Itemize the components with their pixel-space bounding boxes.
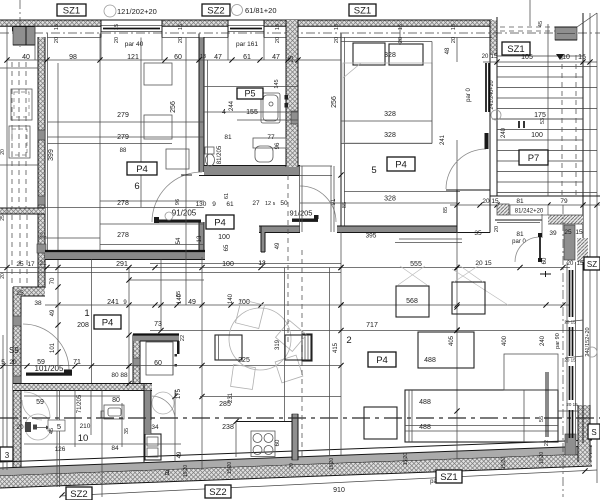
svg-text:279: 279 [117,134,129,141]
svg-text:13: 13 [258,260,266,267]
svg-text:130: 130 [196,201,207,208]
svg-text:65: 65 [224,244,230,251]
svg-text:60: 60 [275,439,281,446]
svg-text:20: 20 [334,37,340,43]
svg-text:80: 80 [112,397,120,404]
svg-text:240: 240 [540,335,546,346]
svg-text:S: S [591,428,596,437]
svg-text:71: 71 [73,359,81,366]
svg-text:85: 85 [443,207,449,213]
svg-text:400: 400 [502,335,508,346]
svg-text:256: 256 [331,96,338,108]
svg-text:5: 5 [371,165,376,176]
svg-text:35: 35 [474,230,482,237]
svg-text:21: 21 [39,232,47,239]
svg-text:399: 399 [48,149,55,161]
svg-text:488: 488 [419,424,431,431]
svg-text:45: 45 [49,428,55,434]
svg-text:15|20: 15|20 [183,465,189,478]
svg-text:15: 15 [484,260,492,267]
svg-text:81/205: 81/205 [217,145,223,164]
svg-text:22: 22 [544,440,550,446]
svg-text:2: 2 [346,335,351,346]
svg-text:278: 278 [117,200,129,207]
svg-text:27: 27 [252,200,260,207]
svg-text:910: 910 [333,487,345,494]
svg-text:15: 15 [491,54,498,60]
svg-text:81: 81 [224,134,232,141]
svg-text:a: a [164,467,169,477]
svg-text:15: 15 [178,24,184,30]
svg-text:20: 20 [494,226,500,232]
svg-text:210: 210 [80,423,91,430]
svg-text:15: 15 [577,261,584,267]
svg-text:SZ: SZ [587,260,597,269]
svg-text:10: 10 [562,54,570,61]
svg-text:49: 49 [177,451,183,458]
svg-text:244: 244 [229,100,235,111]
svg-text:SZ2: SZ2 [70,489,87,500]
svg-text:61: 61 [226,201,234,208]
svg-text:3: 3 [5,451,10,460]
svg-text:71/205: 71/205 [77,394,83,413]
svg-text:20: 20 [54,37,60,43]
svg-text:100: 100 [218,234,230,241]
svg-text:238: 238 [222,424,234,431]
svg-text:80: 80 [111,372,119,379]
svg-text:SZ1: SZ1 [354,5,371,16]
svg-text:P4: P4 [214,217,226,228]
svg-text:328: 328 [384,196,396,203]
svg-text:P4: P4 [376,355,388,366]
svg-text:568: 568 [406,298,418,305]
svg-text:P4: P4 [136,164,148,175]
svg-text:47: 47 [214,54,222,61]
svg-text:278: 278 [117,232,129,239]
svg-text:70: 70 [50,277,56,284]
svg-text:53: 53 [540,118,546,124]
svg-text:96: 96 [275,142,281,149]
svg-text:488: 488 [424,357,436,364]
svg-text:73: 73 [154,321,162,328]
svg-text:20 15: 20 15 [564,358,576,363]
svg-text:60: 60 [542,257,548,264]
svg-text:15: 15 [114,24,120,30]
svg-text:15|20: 15|20 [403,453,409,466]
svg-text:60: 60 [154,360,162,367]
svg-text:140: 140 [177,293,183,304]
svg-text:279: 279 [117,112,129,119]
svg-text:91/205: 91/205 [172,209,197,218]
svg-text:555: 555 [410,261,422,268]
svg-text:77: 77 [267,134,275,141]
svg-text:5: 5 [57,422,61,431]
svg-text:717: 717 [366,322,378,329]
svg-text:121/202+20: 121/202+20 [117,7,157,16]
svg-text:79: 79 [560,198,568,205]
svg-text:35: 35 [124,428,130,434]
svg-text:45: 45 [538,21,544,27]
svg-text:12: 12 [265,201,271,207]
svg-text:15|20: 15|20 [227,462,233,475]
svg-text:par 0: par 0 [466,88,472,102]
svg-text:34: 34 [151,424,159,431]
svg-text:96: 96 [175,199,181,205]
svg-text:328: 328 [384,52,396,59]
svg-text:13: 13 [197,235,203,242]
svg-text:20: 20 [0,273,6,279]
svg-text:20 15: 20 15 [566,402,578,407]
svg-text:20: 20 [482,198,490,205]
svg-text:88: 88 [120,372,128,379]
svg-text:59: 59 [36,399,44,406]
svg-text:145: 145 [274,79,280,88]
svg-text:140: 140 [228,293,234,304]
svg-text:P4: P4 [102,317,114,328]
svg-text:20: 20 [482,54,489,60]
svg-text:38: 38 [34,300,42,307]
svg-text:15: 15 [575,229,583,236]
svg-text:59: 59 [37,359,45,366]
svg-text:208: 208 [77,322,89,329]
svg-text:40: 40 [22,54,30,61]
svg-text:SZ1: SZ1 [63,5,80,16]
svg-text:126: 126 [55,446,66,453]
svg-text:84: 84 [111,445,119,452]
svg-text:60: 60 [174,54,182,61]
svg-text:81: 81 [516,231,524,238]
svg-text:240: 240 [501,127,507,138]
svg-text:256: 256 [170,101,177,113]
svg-text:54: 54 [176,237,182,244]
svg-text:100: 100 [222,261,234,268]
svg-text:P7: P7 [528,153,540,164]
svg-text:175: 175 [176,388,182,399]
svg-text:291: 291 [116,261,128,268]
svg-text:328: 328 [384,111,396,118]
svg-text:61/81+20: 61/81+20 [245,6,277,15]
svg-text:20: 20 [178,37,184,43]
svg-text:SZ2: SZ2 [207,5,224,16]
svg-text:49: 49 [275,242,281,249]
svg-text:21: 21 [39,260,47,267]
svg-text:81: 81 [516,198,524,205]
svg-text:17: 17 [27,261,35,268]
svg-text:20: 20 [9,359,17,366]
svg-text:101: 101 [50,342,56,353]
svg-text:SZ2: SZ2 [209,487,226,498]
svg-text:par 90: par 90 [555,333,561,349]
svg-text:par 161: par 161 [236,41,258,48]
svg-text:13: 13 [200,54,206,60]
svg-text:61: 61 [243,54,251,61]
svg-text:395: 395 [366,233,377,240]
svg-text:22: 22 [180,335,186,341]
svg-text:4: 4 [222,109,226,116]
svg-text:100: 100 [531,132,543,139]
svg-text:20: 20 [451,37,457,43]
svg-text:88: 88 [120,148,127,154]
svg-text:85: 85 [342,202,348,208]
svg-text:15: 15 [334,24,340,30]
svg-text:405: 405 [449,335,455,346]
svg-text:15: 15 [451,24,457,30]
svg-text:20: 20 [289,463,295,469]
svg-text:20: 20 [0,149,6,155]
svg-text:81/242+20: 81/242+20 [515,209,544,215]
svg-text:241: 241 [440,134,446,145]
svg-text:10: 10 [78,433,89,444]
svg-text:285: 285 [219,401,231,408]
svg-text:20: 20 [114,37,120,43]
svg-text:S9: S9 [9,346,19,355]
svg-text:SZ1: SZ1 [440,472,457,483]
svg-text:39: 39 [549,230,557,237]
svg-text:25: 25 [564,229,572,236]
svg-text:48: 48 [445,47,451,54]
svg-text:155: 155 [246,109,258,116]
svg-text:225: 225 [238,357,250,364]
svg-text:415: 415 [333,342,339,353]
svg-text:15|20: 15|20 [501,457,507,470]
svg-text:1: 1 [84,308,89,319]
svg-text:61: 61 [224,193,230,199]
svg-text:55: 55 [539,416,545,422]
svg-text:6: 6 [134,181,139,192]
svg-text:15: 15 [275,24,281,30]
svg-text:241/152+20: 241/152+20 [585,327,591,356]
svg-text:15: 15 [398,24,404,30]
svg-text:15: 15 [54,24,60,30]
svg-text:20: 20 [16,424,24,431]
svg-text:328: 328 [384,132,396,139]
svg-text:20 15: 20 15 [564,320,576,325]
svg-text:P4: P4 [395,159,407,170]
svg-text:20: 20 [475,260,483,267]
svg-text:25: 25 [0,215,6,221]
svg-text:20: 20 [567,261,574,267]
svg-text:25: 25 [16,290,24,297]
svg-text:50: 50 [280,200,288,207]
svg-text:98: 98 [69,54,77,61]
svg-text:49: 49 [50,309,56,316]
svg-text:15|20: 15|20 [539,452,545,465]
svg-text:488: 488 [419,399,431,406]
svg-text:91/205: 91/205 [290,209,313,218]
svg-text:par 40: par 40 [125,41,144,48]
svg-text:20: 20 [398,37,404,43]
svg-text:319: 319 [275,339,281,350]
svg-text:47: 47 [272,54,280,61]
svg-text:121: 121 [127,54,139,61]
svg-text:15|20: 15|20 [329,458,335,471]
svg-text:105: 105 [521,54,533,61]
svg-text:20: 20 [275,37,281,43]
svg-text:P5: P5 [244,89,255,99]
svg-text:9: 9 [212,201,216,208]
